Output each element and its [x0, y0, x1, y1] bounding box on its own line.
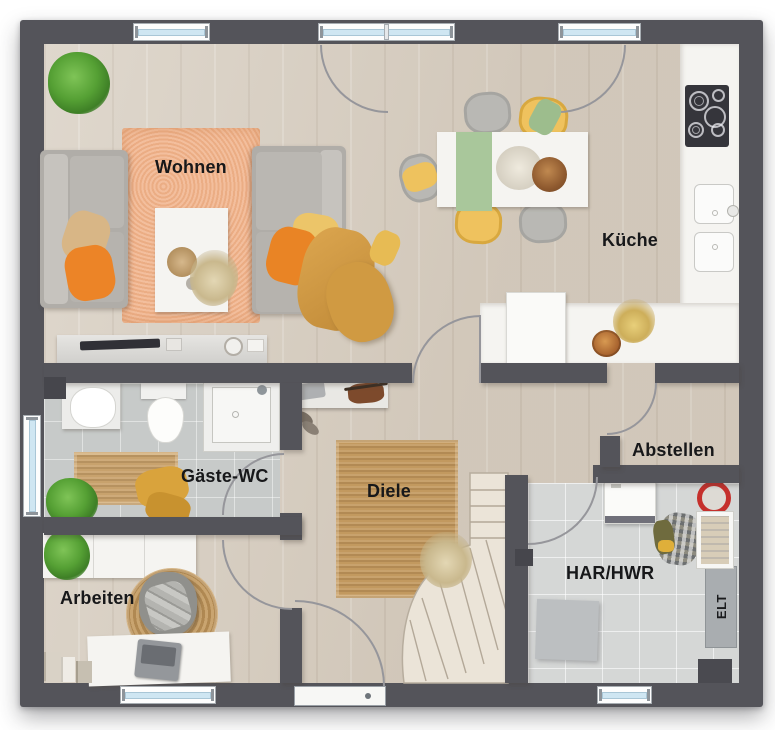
wall-wc-office — [44, 517, 302, 535]
room-label-gaeste-wc: Gäste-WC — [181, 467, 269, 485]
washing-machine-icon — [604, 478, 656, 524]
room-label-har-hwr: HAR/HWR — [566, 564, 654, 582]
wall-hall-utility — [505, 475, 528, 683]
room-label-arbeiten: Arbeiten — [60, 589, 135, 607]
laptop-icon — [134, 639, 182, 681]
sink-drain-icon — [712, 244, 718, 250]
kitchen-tall-cabinet — [506, 292, 566, 365]
wall-kitchen-storage — [655, 363, 739, 383]
deco-box-icon — [247, 339, 264, 352]
wall-storage-utility — [593, 465, 739, 483]
shower — [203, 378, 280, 452]
wall-wc-hall-upper — [280, 383, 302, 450]
sideboard — [57, 335, 267, 365]
door-handle-icon — [365, 693, 371, 699]
window-bottom-office — [120, 686, 216, 704]
window-left — [23, 415, 41, 517]
entrance-door — [294, 686, 386, 706]
window-top-1 — [133, 23, 210, 41]
elt-label: ELT — [714, 594, 729, 619]
console-shelf — [288, 380, 388, 408]
wall-kitchen-hall — [480, 363, 607, 383]
drying-rack-icon — [696, 511, 734, 569]
deco-ring-icon — [224, 337, 243, 356]
floor-duct — [698, 659, 732, 683]
dining-chair-gray-1 — [463, 90, 513, 135]
room-label-diele: Diele — [367, 482, 411, 500]
room-label-wohnen: Wohnen — [155, 158, 227, 176]
laundry-cloth-icon — [658, 540, 674, 552]
wall-living-hall — [44, 363, 412, 383]
sink-drain-icon — [712, 210, 718, 216]
window-mullion — [384, 24, 389, 40]
electrical-cabinet: ELT — [705, 566, 737, 648]
sink-basin-1 — [694, 184, 734, 224]
sink-basin-2 — [694, 232, 734, 272]
window-top-3 — [558, 23, 641, 41]
door-leaf-living — [479, 315, 481, 383]
plant-icon — [48, 52, 110, 114]
dining-table — [437, 132, 588, 207]
table-runner — [456, 132, 492, 211]
books-icon — [76, 661, 92, 683]
plant-icon — [44, 530, 90, 580]
food-bowl-icon — [532, 157, 567, 192]
faucet-icon — [727, 205, 739, 217]
window-bottom-utility — [597, 686, 652, 704]
books-icon — [61, 657, 75, 682]
wall-door-stop — [515, 549, 533, 566]
dining-chair-gray-3 — [518, 201, 568, 244]
room-label-abstellen: Abstellen — [632, 441, 715, 459]
books-icon — [44, 652, 61, 681]
bucket-icon — [697, 481, 731, 515]
soundbar-icon — [80, 339, 160, 351]
wc-duct — [44, 377, 66, 399]
shower-head-icon — [257, 385, 267, 395]
deco-books-icon — [166, 338, 182, 351]
wall-storage-stub — [600, 436, 620, 467]
washbasin-icon — [70, 387, 116, 428]
room-label-kueche: Küche — [602, 231, 658, 249]
floorplan-canvas: ELT Wohnen Küche Gäste-WC Diele Abstelle… — [0, 0, 775, 730]
cooktop-icon — [685, 85, 729, 147]
shower-drain-icon — [232, 411, 239, 418]
utility-box — [535, 599, 599, 661]
